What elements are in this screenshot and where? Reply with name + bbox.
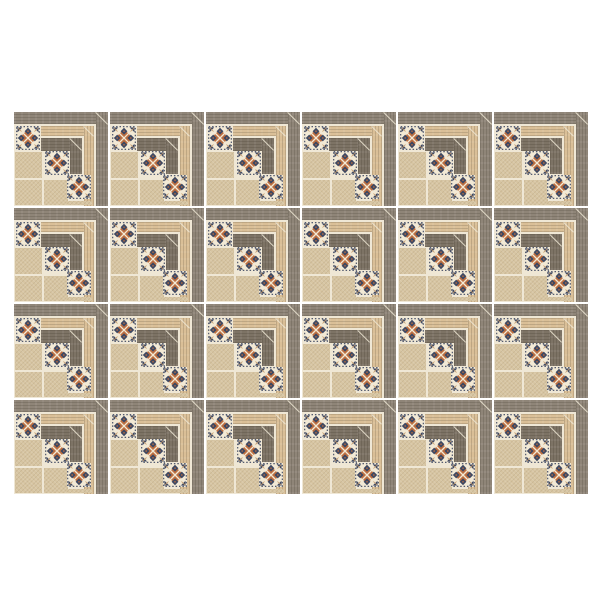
ornament-motif-center xyxy=(429,343,453,367)
ornament-motif-top-left xyxy=(304,222,328,246)
field-cell xyxy=(163,201,188,205)
decor-corner-tile xyxy=(206,112,300,206)
ornament-motif-top-left xyxy=(208,414,232,438)
ornament-motif-top-left xyxy=(496,126,520,150)
field-cell xyxy=(495,248,522,274)
wood-band-grey-right xyxy=(480,208,492,302)
field-cell xyxy=(44,468,68,493)
ornament-motif-top-left xyxy=(304,318,328,342)
wood-band-grey-right xyxy=(192,400,204,494)
field-cell xyxy=(207,440,234,466)
field-cell xyxy=(111,468,138,493)
field-cell xyxy=(163,393,188,397)
ornament-motif-top-left xyxy=(208,318,232,342)
field-cell xyxy=(303,248,330,274)
wood-band-grey-right xyxy=(480,112,492,206)
field-cell xyxy=(547,201,572,205)
field-cell xyxy=(111,248,138,274)
decor-corner-tile xyxy=(398,400,492,494)
decor-corner-tile xyxy=(110,304,204,398)
field-cell xyxy=(15,344,42,370)
wood-band-grey-top xyxy=(494,400,588,412)
field-cell xyxy=(259,201,284,205)
decor-corner-tile xyxy=(110,112,204,206)
ornament-motif-top-left xyxy=(16,222,40,246)
field-cell xyxy=(332,276,356,301)
ornament-motif-center xyxy=(141,439,165,463)
ornament-motif-bottom-right xyxy=(451,271,475,295)
tile-grid xyxy=(14,112,588,494)
field-cell xyxy=(547,297,572,301)
decor-corner-tile xyxy=(398,112,492,206)
field-cell xyxy=(236,468,260,493)
ornament-motif-bottom-right xyxy=(451,463,475,487)
decor-corner-tile xyxy=(494,304,588,398)
field-cell xyxy=(451,297,476,301)
decor-corner-tile xyxy=(302,304,396,398)
decor-corner-tile xyxy=(110,400,204,494)
field-cell xyxy=(259,489,284,493)
wood-band-grey-right xyxy=(288,112,300,206)
ornament-motif-top-left xyxy=(400,318,424,342)
field-cell xyxy=(207,248,234,274)
wood-band-grey-top xyxy=(14,400,108,412)
ornament-motif-top-left xyxy=(112,126,136,150)
ornament-motif-center xyxy=(333,247,357,271)
ornament-motif-center xyxy=(237,343,261,367)
field-cell xyxy=(67,201,92,205)
ornament-motif-top-left xyxy=(400,222,424,246)
field-cell xyxy=(399,276,426,301)
ornament-motif-bottom-right xyxy=(259,175,283,199)
product-image-canvas xyxy=(0,0,600,600)
decor-corner-tile xyxy=(206,304,300,398)
field-cell xyxy=(303,152,330,178)
field-cell xyxy=(495,276,522,301)
ornament-motif-bottom-right xyxy=(163,367,187,391)
field-cell xyxy=(140,468,164,493)
ornament-motif-bottom-right xyxy=(451,175,475,199)
field-cell xyxy=(355,297,380,301)
field-cell xyxy=(303,372,330,397)
field-cell xyxy=(259,297,284,301)
field-cell xyxy=(111,152,138,178)
ornament-motif-bottom-right xyxy=(547,271,571,295)
field-cell xyxy=(428,276,452,301)
field-cell xyxy=(399,372,426,397)
wood-band-grey-top xyxy=(14,112,108,124)
field-cell xyxy=(44,372,68,397)
field-cell xyxy=(207,468,234,493)
decor-corner-tile xyxy=(302,208,396,302)
field-cell xyxy=(15,248,42,274)
wood-band-grey-top xyxy=(398,208,492,220)
field-cell xyxy=(236,276,260,301)
field-cell xyxy=(111,372,138,397)
wood-band-grey-top xyxy=(14,208,108,220)
field-cell xyxy=(15,468,42,493)
wood-band-grey-top xyxy=(398,304,492,316)
ornament-motif-center xyxy=(333,151,357,175)
field-cell xyxy=(451,201,476,205)
ornament-motif-bottom-right xyxy=(355,367,379,391)
ornament-motif-bottom-right xyxy=(547,175,571,199)
field-cell xyxy=(163,489,188,493)
wood-band-grey-right xyxy=(96,208,108,302)
decor-corner-tile xyxy=(14,112,108,206)
ornament-motif-center xyxy=(141,247,165,271)
wood-band-grey-top xyxy=(110,304,204,316)
decor-corner-tile xyxy=(206,400,300,494)
ornament-motif-center xyxy=(237,151,261,175)
field-cell xyxy=(355,489,380,493)
field-cell xyxy=(111,344,138,370)
field-cell xyxy=(524,372,548,397)
wood-band-grey-top xyxy=(206,400,300,412)
ornament-motif-bottom-right xyxy=(451,367,475,391)
field-cell xyxy=(44,180,68,205)
wood-band-grey-right xyxy=(576,112,588,206)
field-cell xyxy=(140,276,164,301)
ornament-motif-center xyxy=(141,151,165,175)
field-cell xyxy=(67,489,92,493)
ornament-motif-bottom-right xyxy=(259,271,283,295)
wood-band-grey-right xyxy=(384,208,396,302)
ornament-motif-center xyxy=(45,343,69,367)
ornament-motif-center xyxy=(45,247,69,271)
field-cell xyxy=(399,344,426,370)
wood-band-grey-top xyxy=(398,112,492,124)
ornament-motif-bottom-right xyxy=(355,175,379,199)
wood-band-grey-top xyxy=(302,304,396,316)
field-cell xyxy=(140,372,164,397)
field-cell xyxy=(163,297,188,301)
ornament-motif-bottom-right xyxy=(67,463,91,487)
wood-band-grey-right xyxy=(576,208,588,302)
decor-corner-tile xyxy=(302,112,396,206)
field-cell xyxy=(399,180,426,205)
ornament-motif-bottom-right xyxy=(163,175,187,199)
decor-corner-tile xyxy=(14,208,108,302)
wood-band-grey-right xyxy=(192,208,204,302)
field-cell xyxy=(547,489,572,493)
decor-corner-tile xyxy=(302,400,396,494)
field-cell xyxy=(428,180,452,205)
field-cell xyxy=(524,180,548,205)
ornament-motif-top-left xyxy=(16,126,40,150)
ornament-motif-bottom-right xyxy=(67,367,91,391)
field-cell xyxy=(15,152,42,178)
field-cell xyxy=(495,468,522,493)
decor-corner-tile xyxy=(398,208,492,302)
ornament-motif-bottom-right xyxy=(355,271,379,295)
field-cell xyxy=(355,393,380,397)
decor-corner-tile xyxy=(14,304,108,398)
field-cell xyxy=(399,468,426,493)
ornament-motif-center xyxy=(429,151,453,175)
ornament-motif-top-left xyxy=(16,318,40,342)
wood-band-grey-top xyxy=(302,400,396,412)
ornament-motif-bottom-right xyxy=(259,367,283,391)
field-cell xyxy=(67,393,92,397)
wood-band-grey-top xyxy=(494,112,588,124)
field-cell xyxy=(67,297,92,301)
ornament-motif-bottom-right xyxy=(163,271,187,295)
field-cell xyxy=(15,180,42,205)
field-cell xyxy=(15,372,42,397)
wood-band-grey-top xyxy=(302,112,396,124)
ornament-motif-center xyxy=(45,439,69,463)
ornament-motif-top-left xyxy=(16,414,40,438)
field-cell xyxy=(428,468,452,493)
wood-band-grey-right xyxy=(384,400,396,494)
wood-band-grey-right xyxy=(288,400,300,494)
ornament-motif-top-left xyxy=(208,222,232,246)
field-cell xyxy=(524,276,548,301)
field-cell xyxy=(236,180,260,205)
field-cell xyxy=(303,180,330,205)
ornament-motif-center xyxy=(429,439,453,463)
decor-corner-tile xyxy=(206,208,300,302)
field-cell xyxy=(495,440,522,466)
wood-band-grey-top xyxy=(398,400,492,412)
decor-corner-tile xyxy=(14,400,108,494)
ornament-motif-top-left xyxy=(112,414,136,438)
field-cell xyxy=(332,468,356,493)
field-cell xyxy=(495,180,522,205)
field-cell xyxy=(111,440,138,466)
field-cell xyxy=(303,440,330,466)
wood-band-grey-right xyxy=(480,304,492,398)
wood-band-grey-top xyxy=(494,304,588,316)
wood-band-grey-right xyxy=(480,400,492,494)
wood-band-grey-right xyxy=(576,304,588,398)
ornament-motif-top-left xyxy=(112,318,136,342)
ornament-motif-bottom-right xyxy=(355,463,379,487)
decor-corner-tile xyxy=(494,112,588,206)
ornament-motif-center xyxy=(237,247,261,271)
wood-band-grey-top xyxy=(110,208,204,220)
field-cell xyxy=(111,276,138,301)
ornament-motif-bottom-right xyxy=(163,463,187,487)
ornament-motif-top-left xyxy=(304,126,328,150)
wood-band-grey-right xyxy=(96,304,108,398)
decor-corner-tile xyxy=(398,304,492,398)
field-cell xyxy=(207,180,234,205)
wood-band-grey-right xyxy=(384,112,396,206)
ornament-motif-top-left xyxy=(112,222,136,246)
wood-band-grey-right xyxy=(96,400,108,494)
ornament-motif-top-left xyxy=(400,414,424,438)
ornament-motif-center xyxy=(429,247,453,271)
field-cell xyxy=(207,152,234,178)
field-cell xyxy=(303,344,330,370)
ornament-motif-top-left xyxy=(400,126,424,150)
wood-band-grey-top xyxy=(206,208,300,220)
field-cell xyxy=(259,393,284,397)
ornament-motif-top-left xyxy=(496,318,520,342)
decor-corner-tile xyxy=(494,208,588,302)
field-cell xyxy=(495,372,522,397)
field-cell xyxy=(111,180,138,205)
ornament-motif-bottom-right xyxy=(259,463,283,487)
wood-band-grey-right xyxy=(96,112,108,206)
field-cell xyxy=(15,440,42,466)
field-cell xyxy=(207,372,234,397)
decor-corner-tile xyxy=(110,208,204,302)
ornament-motif-top-left xyxy=(208,126,232,150)
field-cell xyxy=(236,372,260,397)
ornament-motif-top-left xyxy=(304,414,328,438)
wood-band-grey-right xyxy=(288,208,300,302)
field-cell xyxy=(399,440,426,466)
ornament-motif-center xyxy=(333,343,357,367)
ornament-motif-center xyxy=(141,343,165,367)
field-cell xyxy=(15,276,42,301)
field-cell xyxy=(451,393,476,397)
ornament-motif-center xyxy=(237,439,261,463)
ornament-motif-bottom-right xyxy=(67,271,91,295)
wood-band-grey-right xyxy=(192,112,204,206)
field-cell xyxy=(332,180,356,205)
wood-band-grey-top xyxy=(110,400,204,412)
ornament-motif-center xyxy=(45,151,69,175)
ornament-motif-center xyxy=(525,343,549,367)
ornament-motif-bottom-right xyxy=(547,367,571,391)
wood-band-grey-top xyxy=(302,208,396,220)
ornament-motif-top-left xyxy=(496,222,520,246)
decor-corner-tile xyxy=(494,400,588,494)
wood-band-grey-right xyxy=(384,304,396,398)
field-cell xyxy=(207,344,234,370)
ornament-motif-bottom-right xyxy=(67,175,91,199)
field-cell xyxy=(495,152,522,178)
field-cell xyxy=(140,180,164,205)
field-cell xyxy=(524,468,548,493)
field-cell xyxy=(399,152,426,178)
field-cell xyxy=(451,489,476,493)
field-cell xyxy=(332,372,356,397)
ornament-motif-center xyxy=(525,247,549,271)
ornament-motif-center xyxy=(525,151,549,175)
wood-band-grey-right xyxy=(576,400,588,494)
wood-band-grey-top xyxy=(110,112,204,124)
field-cell xyxy=(547,393,572,397)
wood-band-grey-right xyxy=(288,304,300,398)
field-cell xyxy=(303,276,330,301)
field-cell xyxy=(495,344,522,370)
ornament-motif-top-left xyxy=(496,414,520,438)
ornament-motif-bottom-right xyxy=(547,463,571,487)
field-cell xyxy=(207,276,234,301)
wood-band-grey-top xyxy=(206,112,300,124)
field-cell xyxy=(355,201,380,205)
field-cell xyxy=(303,468,330,493)
ornament-motif-center xyxy=(333,439,357,463)
field-cell xyxy=(399,248,426,274)
wood-band-grey-right xyxy=(192,304,204,398)
wood-band-grey-top xyxy=(206,304,300,316)
wood-band-grey-top xyxy=(494,208,588,220)
ornament-motif-center xyxy=(525,439,549,463)
wood-band-grey-top xyxy=(14,304,108,316)
field-cell xyxy=(428,372,452,397)
field-cell xyxy=(44,276,68,301)
